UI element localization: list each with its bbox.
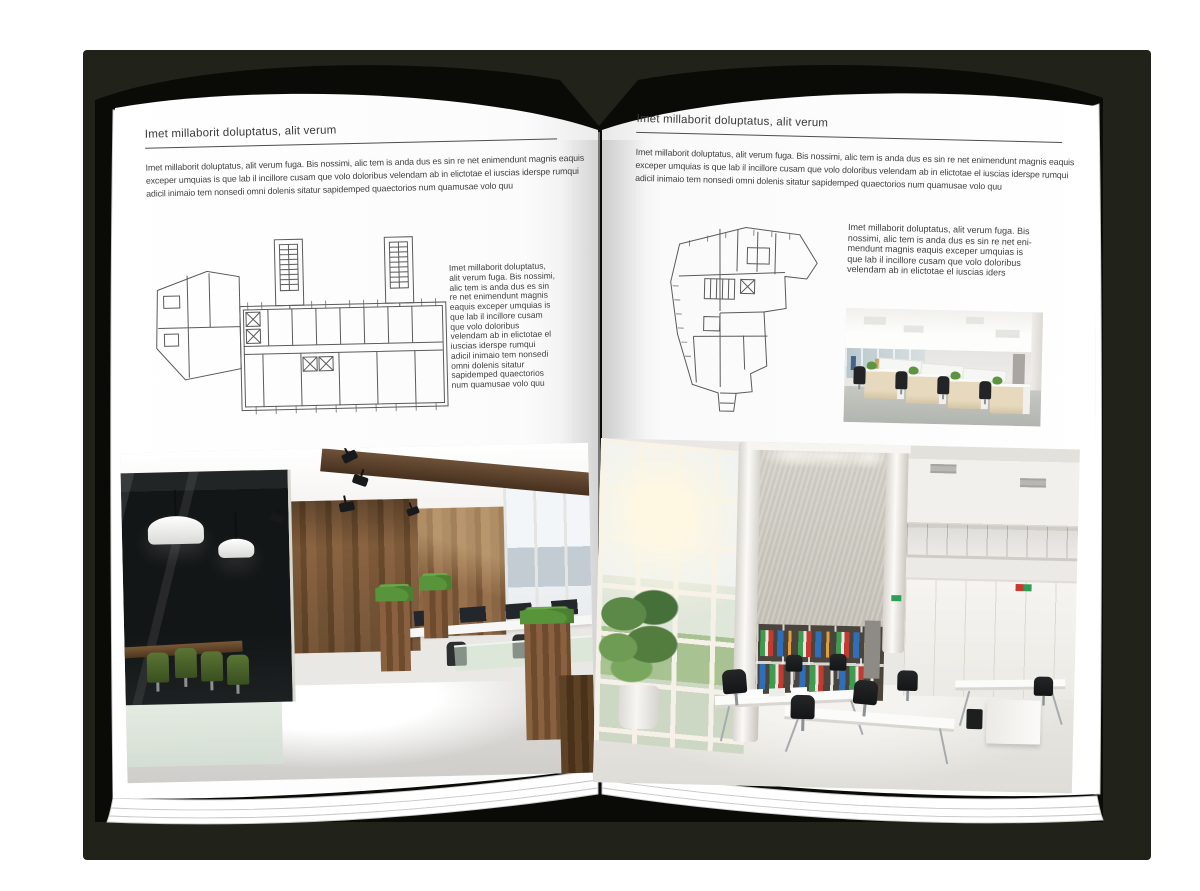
exit-sign: [891, 595, 901, 601]
pendant-lamp: [148, 515, 205, 544]
waste-bin: [966, 709, 982, 729]
office-chair: [785, 655, 804, 683]
office-chair: [790, 695, 817, 736]
wood-planter: [379, 597, 411, 672]
office-column: [1030, 312, 1043, 392]
wood-desk-cabinet: [990, 383, 1031, 414]
right-header-rule: [636, 132, 1062, 143]
potted-plant: [596, 588, 685, 730]
left-page-header: Imet millaborit doluptatus, alit verum: [145, 124, 337, 140]
right-intro-paragraph: Imet millaborit doluptatus, alit verum f…: [635, 146, 1086, 196]
left-intro-paragraph: Imet millaborit doluptatus, alit verum f…: [145, 152, 596, 202]
green-chair: [201, 651, 224, 681]
photo-open-office-small: [843, 308, 1043, 427]
loft-glassroom-floor: [126, 700, 283, 768]
office-chair: [829, 654, 848, 682]
green-chair: [227, 654, 250, 684]
atrium-door: [863, 620, 880, 678]
office-chair: [937, 376, 949, 394]
office-chair: [851, 679, 881, 721]
photo-atrium-office: [593, 438, 1080, 793]
ceiling-vent: [1020, 478, 1046, 488]
pendant-lamp: [218, 538, 254, 558]
office-chair: [853, 366, 865, 384]
wood-planter: [423, 586, 448, 639]
floor-plan-right: [646, 215, 837, 421]
office-chair: [979, 381, 991, 399]
left-side-text: Imet millaborit doluptatus, alit verum f…: [449, 261, 558, 390]
office-chair: [722, 668, 751, 710]
binder-row: [760, 630, 881, 659]
green-chair: [147, 652, 170, 682]
safety-signs: [1016, 584, 1032, 591]
ceiling-vent: [930, 464, 956, 474]
wood-box-corner: [559, 675, 595, 774]
loft-windows: [503, 483, 592, 617]
book-mockup-scene: Imet millaborit doluptatus, alit verum I…: [0, 0, 1200, 891]
office-chair: [897, 670, 920, 705]
mezzanine-railing: [906, 523, 1078, 561]
right-page: Imet millaborit doluptatus, alit verum I…: [593, 82, 1103, 799]
left-header-rule: [145, 138, 557, 149]
right-page-header: Imet millaborit doluptatus, alit verum: [636, 113, 828, 130]
floor-plan-left: [148, 224, 452, 421]
office-chair: [1033, 676, 1055, 708]
left-page: Imet millaborit doluptatus, alit verum I…: [107, 91, 606, 804]
office-ceiling-lights: [845, 308, 1043, 353]
office-chair: [895, 371, 907, 389]
green-chair: [175, 648, 198, 678]
concrete-feature-wall: [757, 442, 889, 627]
office-door: [1012, 354, 1025, 384]
right-side-text: Imet millaborit doluptatus, alit verum f…: [847, 222, 1036, 279]
photo-loft-office: [120, 443, 595, 784]
